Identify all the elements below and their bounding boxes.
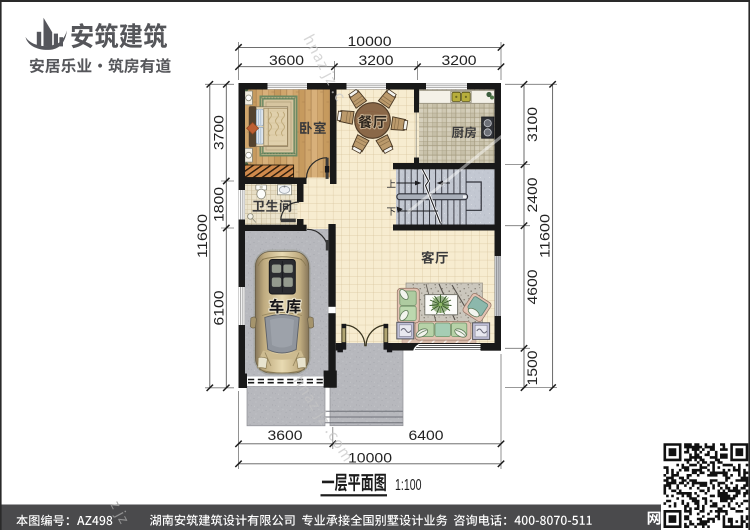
- svg-text:10000: 10000: [348, 449, 392, 465]
- svg-text:3600: 3600: [268, 427, 303, 443]
- svg-text:4600: 4600: [524, 269, 540, 304]
- svg-text:2400: 2400: [524, 177, 540, 212]
- svg-text:11600: 11600: [537, 214, 553, 258]
- svg-text:3600: 3600: [269, 52, 304, 68]
- svg-text:10000: 10000: [348, 33, 392, 49]
- svg-text:3200: 3200: [359, 52, 394, 68]
- svg-text:3200: 3200: [442, 52, 477, 68]
- svg-text:1800: 1800: [211, 187, 227, 222]
- svg-text:11600: 11600: [194, 214, 210, 258]
- svg-text:3100: 3100: [524, 107, 540, 142]
- svg-text:6100: 6100: [211, 290, 227, 325]
- svg-text:1:100: 1:100: [395, 477, 422, 494]
- svg-text:1500: 1500: [524, 350, 540, 385]
- svg-text:6400: 6400: [409, 427, 444, 443]
- svg-text:3700: 3700: [211, 115, 227, 150]
